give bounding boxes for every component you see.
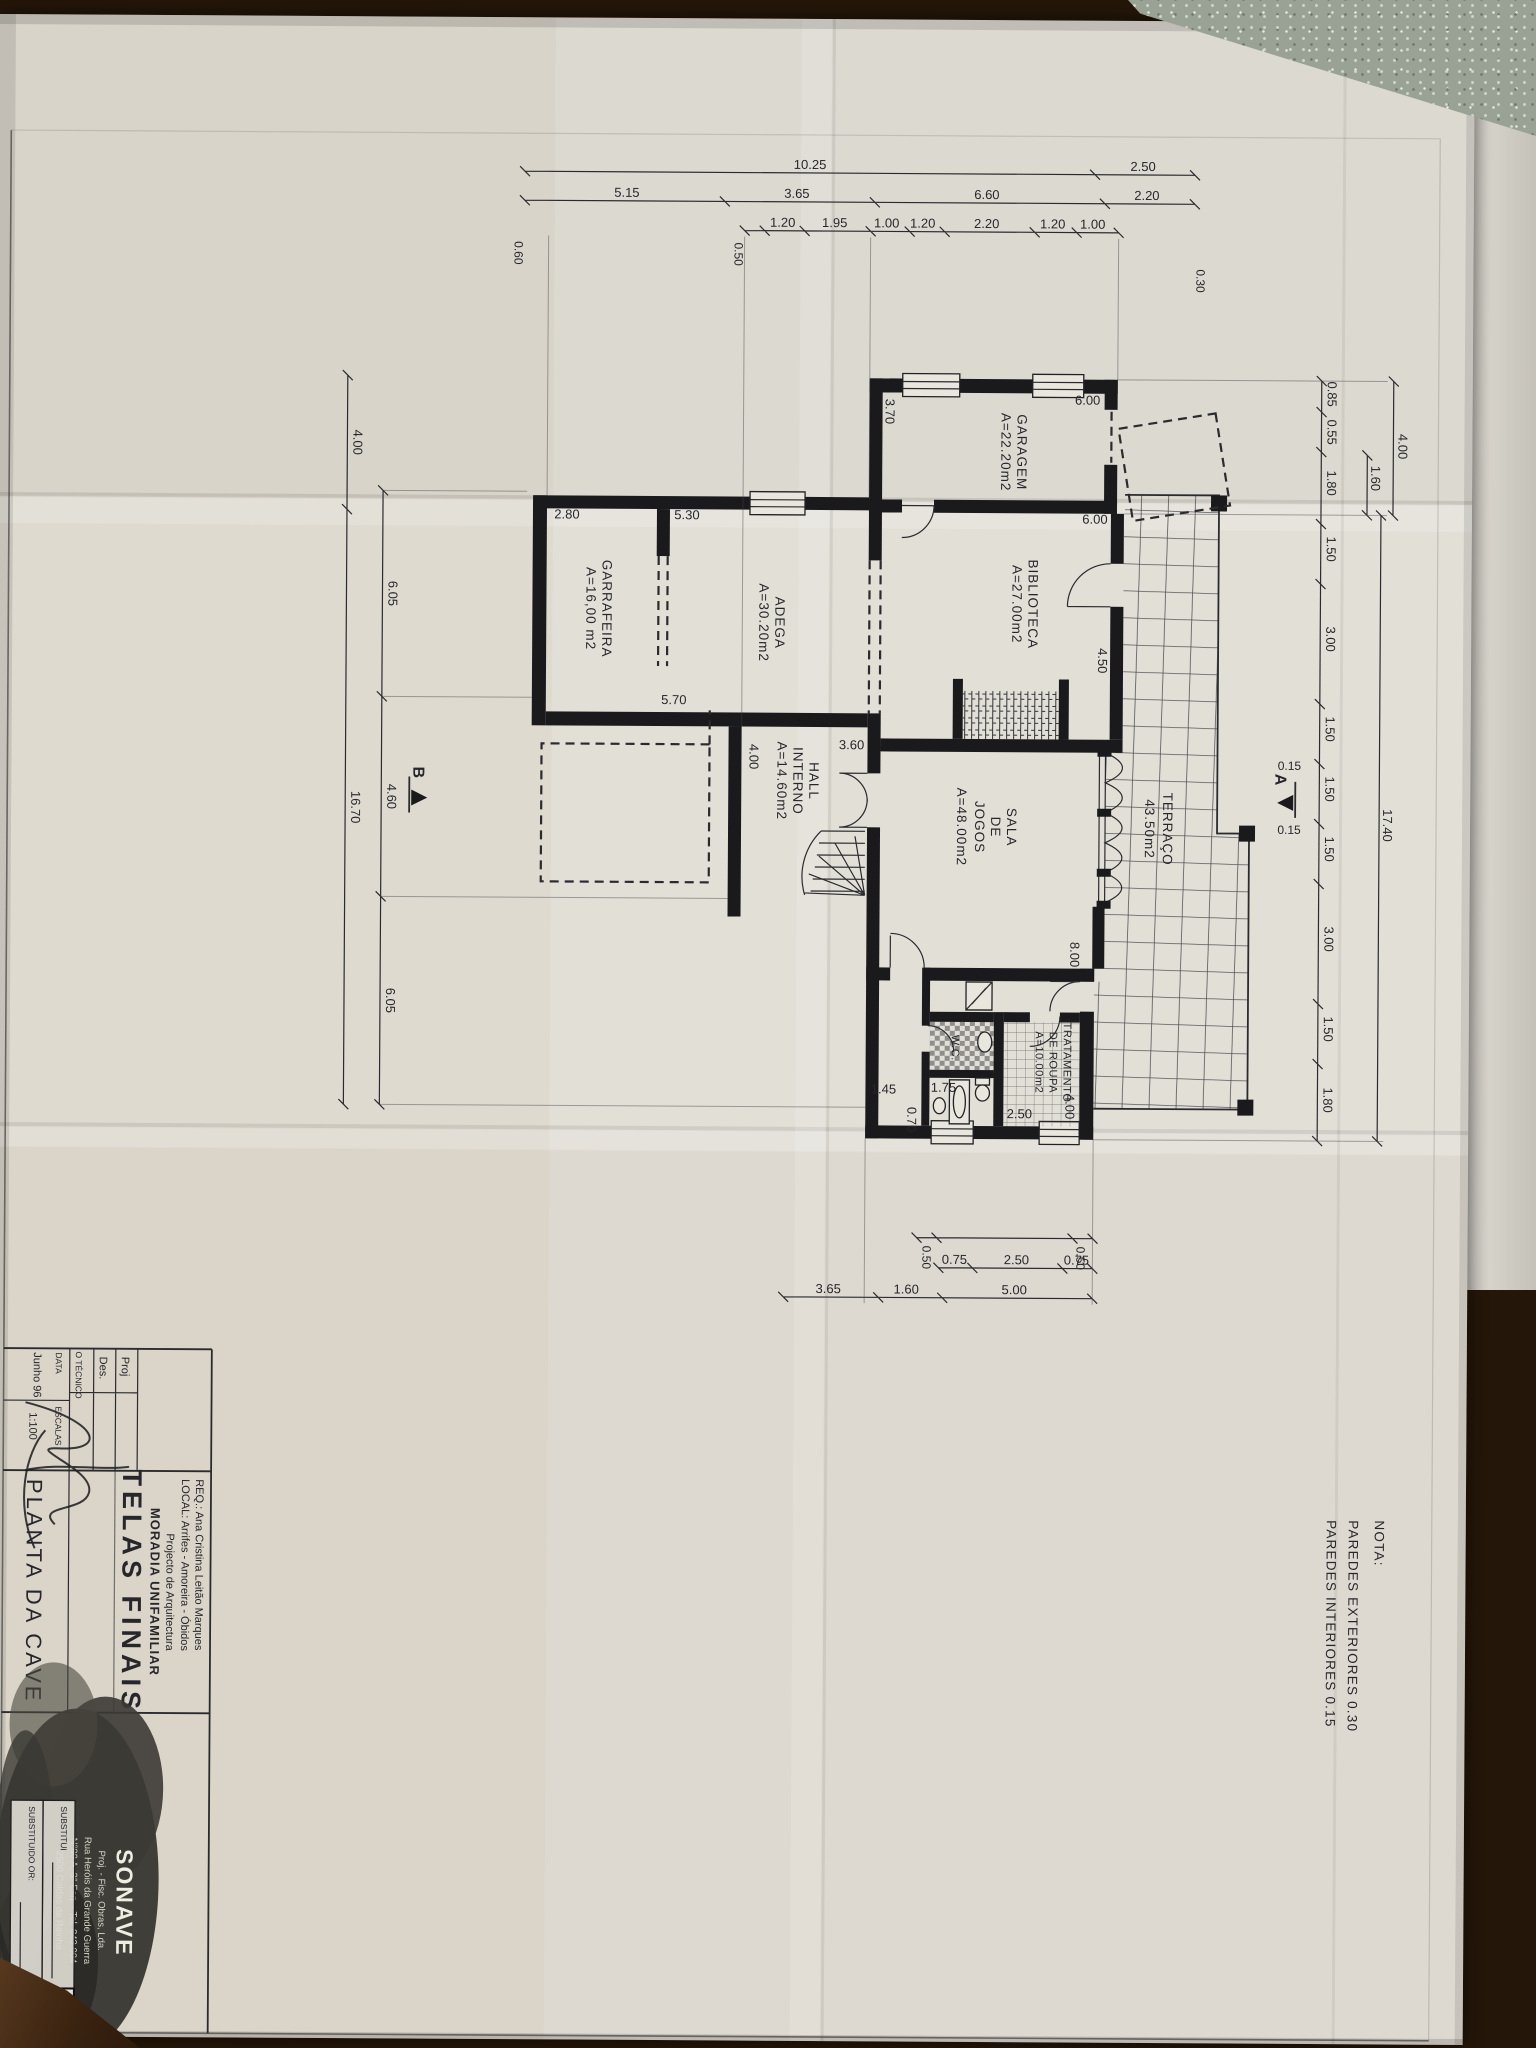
room-label-sala-3: JOGOS: [972, 801, 987, 853]
local-line: LOCAL: Arrifes - Amoreira - Óbidos: [178, 1479, 192, 1651]
dim-label: 4.00: [350, 429, 365, 454]
nota-line-interiores: PAREDES INTERIORES 0.15: [1323, 1520, 1339, 1727]
dim-label: 1.50: [1323, 716, 1338, 741]
double-door-arcs: [839, 773, 867, 827]
room-label-garagem: GARAGEM: [1014, 414, 1029, 490]
escalas-value: 1:100: [26, 1412, 38, 1440]
dim-label: 1.20: [1040, 216, 1065, 231]
door-arc: [890, 933, 924, 967]
dim-label: 5.15: [614, 185, 639, 200]
dim-label: 1.50: [1324, 536, 1339, 561]
dim-label: 2.50: [1130, 159, 1155, 174]
bidet: [933, 1098, 945, 1114]
dim-label: 2.80: [554, 506, 579, 521]
dim-label: 3.65: [784, 186, 809, 201]
dim-label: 0.15: [1278, 759, 1302, 773]
room-label-wc: W.C.: [949, 1035, 961, 1061]
dim-label: 4.00: [1395, 434, 1410, 459]
door-arc: [1067, 564, 1110, 607]
dim-label: 0.50: [919, 1246, 933, 1270]
dim-label: 1.50: [1321, 1016, 1336, 1041]
dim-label: 5.30: [674, 507, 699, 522]
dim-label: 3.70: [883, 399, 898, 424]
room-label-adega: ADEGA: [772, 597, 787, 649]
floor-plan-drawing: TERRAÇO 43.50m2: [0, 14, 1475, 2045]
room-area-garagem: A=22.20m2: [998, 413, 1013, 492]
proj-label: Proj: [119, 1357, 131, 1377]
room-label-hall-2: INTERNO: [790, 747, 805, 815]
dim-label: 1.50: [1322, 836, 1337, 861]
project-type: MORADIA UNIFAMILIAR: [147, 1508, 163, 1676]
door-arc: [1050, 981, 1080, 1011]
stamp-company: SONAVE: [111, 1849, 138, 1957]
dim-label: 1.60: [894, 1281, 919, 1296]
dim-label: 3.65: [816, 1281, 841, 1296]
shower: [966, 982, 992, 1010]
paper-folds: [0, 14, 1475, 2045]
room-label-tratamento-1: TRATAMENTO: [1060, 1023, 1072, 1103]
dim-label: 17.40: [1380, 809, 1395, 842]
substituido-label: SUBSTITUIDO OR:: [27, 1806, 37, 1881]
room-label-sala-2: DE: [988, 817, 1003, 838]
dim-label: 2.20: [974, 216, 999, 231]
window: [750, 492, 805, 515]
dim-label: 1.50: [1322, 776, 1337, 801]
data-value: Junho 96: [31, 1352, 43, 1397]
dim-label: 4.60: [384, 784, 399, 809]
dim-label: 4.50: [1095, 648, 1110, 673]
tecnico-label: O TÉCNICO: [74, 1351, 84, 1399]
dim-label: 6.00: [1075, 393, 1100, 408]
dim-label: 2.50: [1004, 1252, 1029, 1267]
window: [903, 374, 960, 397]
dim-label: 2.20: [1134, 188, 1159, 203]
folded-drawing-sheet: TERRAÇO 43.50m2: [0, 14, 1475, 2045]
toilet: [975, 1078, 989, 1101]
room-area-garrafeira: A=16,00 m2: [583, 567, 599, 650]
dim-label: 6.05: [385, 581, 400, 606]
terrace-post: [1237, 1100, 1253, 1116]
dim-label: 10.25: [794, 157, 827, 172]
dim-label: 1.20: [770, 215, 795, 230]
washbasin: [978, 1032, 992, 1052]
photo-of-floor-plan: TERRAÇO 43.50m2: [0, 0, 1536, 2048]
dim-label: 1.20: [910, 216, 935, 231]
revision-cells: SUBSTITUI SUBSTITUIDO OR:: [10, 1800, 75, 1988]
nota-title: NOTA:: [1372, 1520, 1387, 1566]
dim-label: 6.05: [383, 988, 398, 1013]
dim-label: 5.00: [1002, 1282, 1027, 1297]
dim-label: 0.85: [1325, 381, 1340, 406]
stamp-line1: Proj. - Fisc. Obras, Lda.: [95, 1850, 107, 1950]
dim-label: 0.70: [904, 1107, 919, 1132]
dim-label: 0.75: [942, 1252, 967, 1267]
dim-label: 0.75: [1064, 1253, 1089, 1268]
dim-label: 4.00: [746, 744, 761, 769]
dim-label: 1.00: [1080, 217, 1105, 232]
room-area-tratamento: A=10.00m2: [1032, 1031, 1044, 1093]
section-label-b: B: [409, 767, 426, 779]
dim-label: 2.50: [1007, 1106, 1032, 1121]
dim-label: 3.00: [1321, 926, 1336, 951]
room-area-hall: A=14.60m2: [774, 742, 789, 821]
dim-label: 1.75: [931, 1080, 956, 1095]
data-label: DATA: [54, 1352, 64, 1374]
room-area-terraco: 43.50m2: [1142, 799, 1157, 859]
room-area-sala: A=48.00m2: [954, 788, 969, 867]
room-label-sala-1: SALA: [1004, 808, 1019, 847]
room-label-hall-1: HALL: [806, 762, 821, 800]
section-label-a: A: [1271, 774, 1288, 786]
dim-label: 1.95: [822, 215, 847, 230]
project-subtype: Projecto de Arquitectura: [163, 1533, 176, 1651]
dim-label: 16.70: [348, 791, 363, 824]
dim-label: 0.30: [1193, 269, 1207, 293]
des-label: Des.: [97, 1357, 109, 1380]
dim-label: 1.00: [874, 215, 899, 230]
room-area-adega: A=30.20m2: [756, 583, 771, 662]
stamp-line2: Rua Heróis da Grande Guerra: [81, 1837, 93, 1965]
dim-label: 0.60: [511, 241, 525, 265]
room-label-garrafeira: GARRAFEIRA: [599, 560, 615, 658]
dim-label: 5.70: [661, 692, 686, 707]
dim-label: 6.60: [974, 187, 999, 202]
dim-label: 4.00: [1062, 1094, 1077, 1119]
substitui-label: SUBSTITUI: [59, 1806, 69, 1850]
nota-line-exteriores: PAREDES EXTERIORES 0.30: [1345, 1520, 1361, 1732]
dim-label: 1.80: [1324, 470, 1339, 495]
set-title: TELAS FINAIS: [116, 1469, 147, 1714]
dim-label: 3.60: [839, 737, 864, 752]
terrace-post: [1239, 826, 1255, 842]
unexcavated-dashed-outline: [541, 709, 710, 882]
room-label-biblioteca: BIBLIOTECA: [1025, 560, 1041, 650]
room-label-terraco: TERRAÇO: [1160, 793, 1175, 866]
fireplace: [953, 679, 1069, 740]
dim-label: 8.00: [1067, 942, 1082, 967]
dim-label: 3.00: [1323, 626, 1338, 651]
req-line: REQ.: Ana Cristina Leitão Marques: [192, 1479, 205, 1651]
dim-label: 1.60: [1368, 466, 1383, 491]
section-marker-a: A: [1271, 774, 1295, 818]
dim-label: 0.55: [1324, 419, 1339, 444]
room-label-tratamento-2: DE ROUPA: [1046, 1032, 1058, 1094]
dim-label: 6.00: [1082, 512, 1107, 527]
dim-label: 0.50: [731, 242, 745, 266]
dim-label: 1.80: [1320, 1087, 1335, 1112]
room-area-biblioteca: A=27.00m2: [1009, 565, 1024, 644]
dim-label: 1.45: [871, 1081, 896, 1096]
dim-label: 0.15: [1277, 823, 1301, 837]
